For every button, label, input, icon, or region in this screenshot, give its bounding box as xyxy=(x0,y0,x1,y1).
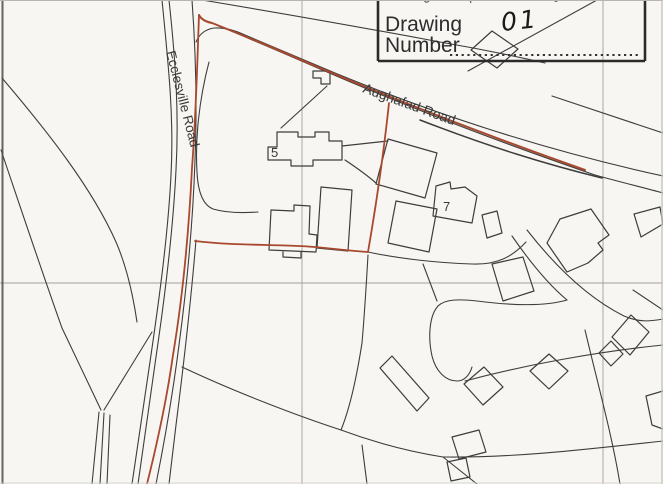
title-block-label-number: Number xyxy=(385,34,460,57)
title-block-label-drawing: Drawing xyxy=(385,13,462,36)
scanned-site-plan: Ecclesville Road Aughafad Road 5 7 Drawi… xyxy=(0,0,663,484)
plot-number-5: 5 xyxy=(271,145,278,160)
plot-number-7: 7 xyxy=(443,199,450,214)
site-plan-map: Ecclesville Road Aughafad Road 5 7 Drawi… xyxy=(0,0,663,484)
drawing-number-value: 01 xyxy=(500,4,541,37)
